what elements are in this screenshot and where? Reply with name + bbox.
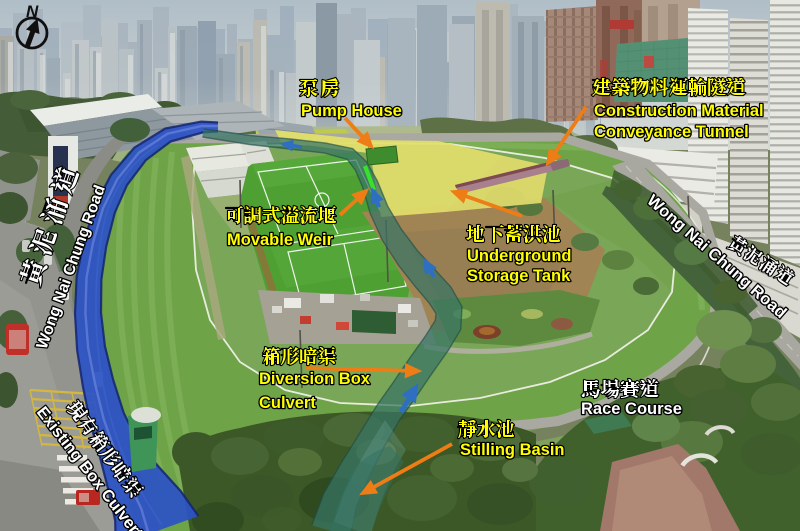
svg-text:Construction Material: Construction Material xyxy=(594,102,764,120)
svg-text:Conveyance Tunnel: Conveyance Tunnel xyxy=(594,123,749,141)
svg-text:Race Course: Race Course xyxy=(581,400,682,418)
svg-text:Movable Weir: Movable Weir xyxy=(227,231,334,249)
svg-text:Stilling Basin: Stilling Basin xyxy=(460,441,565,459)
svg-text:Storage Tank: Storage Tank xyxy=(467,267,571,285)
svg-text:N: N xyxy=(26,2,39,21)
svg-text:Culvert: Culvert xyxy=(259,394,316,412)
svg-text:Underground: Underground xyxy=(467,247,572,265)
svg-text:Pump House: Pump House xyxy=(301,102,402,120)
svg-text:Diversion Box: Diversion Box xyxy=(259,370,371,388)
